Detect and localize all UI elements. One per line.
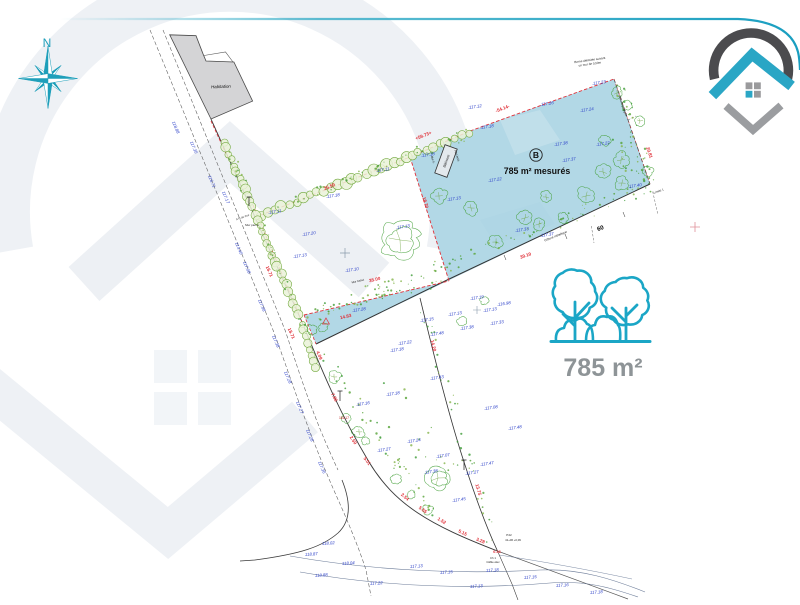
svg-text:117.28: 117.28 — [283, 370, 293, 384]
svg-text:7.88: 7.88 — [330, 392, 339, 403]
svg-text:117.22: 117.22 — [370, 580, 384, 586]
svg-text:117.38: 117.38 — [271, 334, 281, 348]
svg-text:118.04: 118.04 — [342, 560, 356, 566]
svg-text:2.50: 2.50 — [349, 435, 358, 446]
svg-text:117.13: 117.13 — [470, 583, 484, 589]
svg-text:117.13: 117.13 — [410, 563, 424, 569]
svg-text:.117.22: .117.22 — [397, 339, 412, 346]
svg-text:117.08: 117.08 — [242, 260, 252, 274]
svg-text:14.20: 14.20 — [430, 339, 438, 352]
svg-text:.117.15: .117.15 — [419, 316, 434, 323]
svg-text:114.40: 114.40 — [234, 241, 244, 255]
svg-text:60: 60 — [597, 225, 606, 233]
svg-text:N: N — [43, 36, 52, 50]
svg-text:Mur pierre: Mur pierre — [245, 223, 259, 227]
svg-text:.117.16: .117.16 — [355, 400, 370, 407]
svg-text:.117.43: .117.43 — [429, 374, 444, 381]
svg-text:117.17: 117.17 — [221, 190, 231, 204]
svg-text:P.02: P.02 — [506, 533, 512, 537]
svg-text:.117.33: .117.33 — [489, 319, 504, 326]
svg-text:5.15: 5.15 — [458, 528, 469, 537]
svg-text:.117.48: .117.48 — [507, 424, 522, 431]
svg-text:Habitation: Habitation — [211, 84, 231, 90]
svg-text:13.75: 13.75 — [474, 483, 482, 496]
svg-text:.117.27: .117.27 — [376, 446, 391, 453]
svg-text:118.88: 118.88 — [171, 120, 181, 134]
svg-text:39.19: 39.19 — [519, 251, 532, 260]
svg-text:.116.98: .116.98 — [496, 300, 511, 307]
svg-text:785 m² mesurés: 785 m² mesurés — [504, 166, 571, 176]
svg-text:.117.11: .117.11 — [375, 166, 390, 173]
svg-text:Câble élec: Câble élec — [486, 560, 500, 564]
svg-text:117.18: 117.18 — [590, 589, 604, 595]
svg-text:.117.13: .117.13 — [292, 252, 307, 259]
svg-text:-54.14-: -54.14- — [495, 104, 511, 114]
svg-text:785 m²: 785 m² — [563, 354, 642, 382]
svg-text:118.88: 118.88 — [315, 572, 329, 578]
svg-text:B: B — [533, 150, 539, 160]
svg-text:.117.08: .117.08 — [483, 404, 498, 411]
svg-text:41+06 +0,09: 41+06 +0,09 — [505, 538, 521, 542]
svg-text:.117.48: .117.48 — [429, 330, 444, 337]
svg-text:1.52: 1.52 — [437, 516, 448, 525]
svg-text:117.08: 117.08 — [257, 298, 267, 312]
svg-text:Limite 1: Limite 1 — [653, 187, 665, 194]
svg-text:.117.13: .117.13 — [447, 310, 462, 317]
svg-text:0.36: 0.36 — [493, 549, 502, 554]
svg-text:118.02: 118.02 — [322, 540, 336, 546]
svg-text:.117.13: .117.13 — [395, 223, 410, 230]
svg-text:.117.19: .117.19 — [469, 294, 484, 301]
svg-text:3.28: 3.28 — [475, 537, 486, 545]
svg-text:.117.12: .117.12 — [467, 103, 482, 110]
svg-text:117.15: 117.15 — [440, 569, 454, 575]
svg-text:.117.07: .117.07 — [435, 452, 450, 459]
svg-text:117.30: 117.30 — [189, 140, 199, 154]
svg-text:.117.24: .117.24 — [406, 437, 421, 444]
svg-text:.117.18: .117.18 — [325, 192, 340, 199]
svg-text:117.15: 117.15 — [524, 574, 538, 580]
svg-text:117.36: 117.36 — [317, 460, 327, 474]
svg-text:116.17: 116.17 — [339, 416, 349, 420]
svg-text:117.16: 117.16 — [556, 582, 570, 588]
svg-text:.117.47: .117.47 — [479, 460, 494, 467]
svg-text:.117.45: .117.45 — [451, 496, 466, 503]
svg-text:5.55: 5.55 — [418, 505, 429, 515]
svg-text:.117.18: .117.18 — [389, 346, 404, 353]
svg-text:18.71: 18.71 — [287, 327, 296, 340]
svg-text:.117.38: .117.38 — [423, 468, 438, 475]
svg-text:117.18: 117.18 — [486, 567, 500, 573]
svg-text:.117.18: .117.18 — [385, 390, 400, 397]
svg-text:.117.27: .117.27 — [464, 469, 479, 476]
svg-text:.117.38: .117.38 — [459, 324, 474, 331]
svg-text:.117.13: .117.13 — [482, 306, 497, 313]
svg-text:118.87: 118.87 — [305, 551, 319, 557]
